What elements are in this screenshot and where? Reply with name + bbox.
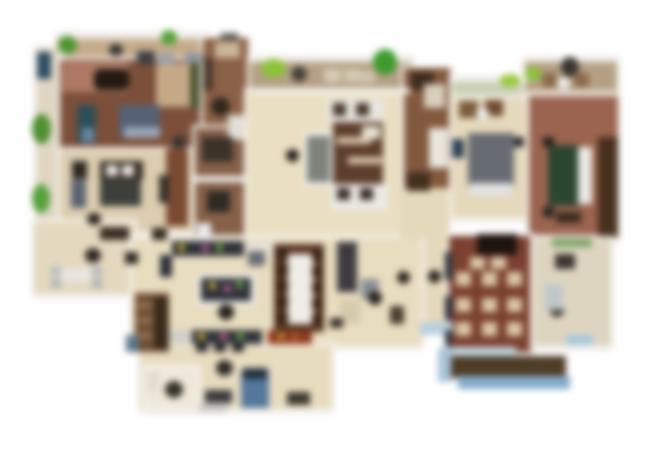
bl-chair-1 [51, 267, 61, 276]
sunroom-glass-table [545, 284, 563, 310]
terrace-plant-left [58, 36, 77, 54]
bedroom1-closet-dark [159, 175, 169, 203]
lounge-pit-white [362, 126, 380, 139]
lower-counter-dot-1 [198, 333, 205, 340]
bedroom1-stool [87, 213, 101, 225]
counter-gray-appliance [248, 251, 265, 266]
pantry-blue-item [126, 335, 138, 352]
bed1-pillow-2 [122, 165, 134, 176]
bed1-body [100, 179, 141, 206]
deck-planks [451, 356, 566, 378]
island-dot-pink [224, 285, 231, 292]
terrace-chair-1 [158, 54, 174, 64]
dr-head-chair-2 [491, 257, 506, 269]
left-bush-lower [32, 184, 50, 213]
balcony-tree-right [373, 49, 397, 75]
bc-desk-top [243, 368, 267, 379]
bl-chair-2 [51, 279, 61, 288]
corridor2-cabinet [390, 306, 404, 324]
bedroom3-bed-white-side [578, 147, 592, 204]
bedroom3-wardrobe [598, 137, 618, 236]
counter-dot-green [216, 244, 223, 251]
bedroom3-balcony-table [557, 77, 570, 89]
corridor-small-item [330, 318, 343, 328]
floor-plan-render [0, 0, 645, 450]
dining-room-cabinet [477, 234, 517, 255]
bl-chair-4 [92, 279, 102, 288]
dining-chair-right-2 [312, 266, 323, 277]
bedroom3-window-band [527, 91, 615, 96]
dr-window-3 [445, 330, 452, 346]
living-chair-teal-light [82, 128, 94, 142]
bath2-sink [147, 371, 159, 392]
bl-round-table [85, 248, 101, 263]
terrace-railing [57, 33, 207, 39]
sunroom-dark-item [555, 254, 575, 269]
dining-chair-left-2 [276, 264, 288, 276]
bedroom3-bed-green [548, 145, 579, 206]
bc-stool [216, 360, 233, 376]
bedroom3-bush [525, 67, 541, 81]
pantry-shelf-2 [138, 318, 152, 323]
pool-top-strip [452, 347, 516, 356]
sunroom-plant-band [552, 238, 592, 247]
dr-chair-6 [507, 298, 522, 312]
lounge-seat-top-1 [333, 103, 346, 116]
dining-chair-left-3 [276, 280, 288, 292]
dr-chair-5 [482, 298, 497, 312]
bath-fixture-lower [207, 191, 230, 212]
bar-stool-3 [232, 344, 244, 352]
room-a-sink [424, 84, 445, 108]
kitchen-tall-unit [160, 255, 172, 277]
room-a-dresser [407, 172, 430, 191]
bedroom1-chair [71, 180, 86, 208]
bedroom1-closet-strip [166, 148, 188, 226]
bc-bench-east [287, 392, 310, 405]
living-piano [94, 69, 129, 90]
lounge-pit-cushion-2 [348, 157, 382, 164]
pantry-shelf-3 [138, 333, 152, 338]
corridor-south-floor [400, 188, 450, 238]
dr-chair-8 [482, 322, 497, 336]
bedroom2-bed [468, 133, 514, 186]
balcony-pot [291, 66, 307, 82]
balcony-chair-c [360, 71, 375, 83]
pantry-dark-shelving [154, 297, 168, 349]
left-pot-blue [37, 52, 51, 79]
corridor-se-table [428, 270, 441, 283]
dr-head-chair-1 [470, 257, 485, 269]
entry-wardrobe [203, 58, 213, 91]
dr-window-2 [445, 296, 452, 320]
dr-chair-4 [456, 298, 471, 312]
bar-stool-2 [214, 344, 226, 352]
living-pot [172, 136, 186, 149]
bedroom2-bed-foot [470, 183, 512, 196]
dr-chair-9 [507, 322, 522, 336]
living-glass-dark [190, 60, 203, 108]
dining-table-white [287, 254, 314, 324]
bedroom2-bush [500, 74, 520, 87]
bath2-round-fixture [165, 381, 183, 398]
dr-chair-7 [456, 322, 471, 336]
lower-counter-white [170, 330, 192, 344]
bedroom2-dark-side [452, 139, 464, 158]
lounge-seat-bottom-2 [360, 188, 373, 200]
bedroom3-nightstand-1 [543, 137, 554, 147]
bedroom2-chair-1 [459, 101, 478, 118]
lower-counter-dot-3 [237, 333, 244, 340]
entry-console [215, 42, 240, 58]
red-buffet [268, 330, 312, 344]
bedroom1-wardrobe [72, 161, 87, 179]
bl-chair-3 [92, 267, 102, 276]
bedroom3-nightstand-2 [543, 207, 554, 217]
balcony-tree-left [261, 59, 286, 78]
bl-sideboard-2 [152, 228, 167, 240]
bedroom3-balcony-chair-2 [574, 73, 589, 87]
island-dot-green [236, 281, 243, 288]
bl-table-white [60, 268, 91, 282]
bedroom3-bench [556, 212, 581, 223]
room-a-bathtub [429, 128, 448, 168]
dr-chair-1 [456, 272, 471, 286]
terrace-chair-2 [185, 53, 202, 63]
dining-chair-left-1 [276, 248, 288, 260]
lower-counter-dot-2 [220, 333, 227, 340]
hall-window-band [252, 88, 410, 94]
balcony-chair-b [344, 69, 361, 82]
bar-stool-1 [196, 344, 208, 352]
hall-round-table [286, 149, 299, 162]
bed1-pillow-1 [106, 165, 118, 176]
bc-bench [205, 390, 232, 403]
dining-chair-right-4 [312, 298, 323, 309]
sunroom-blue-patch [566, 335, 593, 345]
corridor2-round-table [397, 271, 410, 284]
dining-chair-right-5 [312, 314, 323, 325]
bath-toilet [197, 223, 211, 241]
hall-island [307, 136, 330, 182]
living-window-strip [156, 63, 190, 107]
terrace-plant-right [161, 30, 177, 45]
bedroom3-balcony-chair-1 [542, 73, 557, 87]
terrace-grill [137, 51, 155, 64]
bath-cluster-divider [195, 176, 247, 182]
buffet-dot-1 [278, 333, 284, 339]
bc-doorstep [199, 404, 227, 412]
pool-bottom-water [458, 376, 570, 389]
corridor-side-table [340, 300, 360, 324]
bedroom2-nightstand [514, 137, 524, 147]
island-dot-yellow [209, 282, 216, 289]
counter-dot-pink [202, 245, 209, 252]
screenshot-canvas [0, 0, 645, 450]
bl-sideboard [100, 227, 129, 240]
lounge-seat-bottom-1 [337, 188, 350, 200]
dining-chair-right-3 [312, 282, 323, 293]
terrace-pot-dark [109, 44, 123, 56]
balcony-chair-a [324, 69, 341, 82]
entry-round-table [211, 97, 230, 116]
dr-chair-2 [482, 272, 497, 286]
lounge-seat-top-2 [356, 103, 369, 116]
counter-dot-yellow [178, 244, 185, 251]
corridor-round-table [368, 291, 382, 305]
dining-chair-right-1 [312, 250, 323, 261]
left-bush-upper [32, 114, 51, 144]
bath-fixture-upper [202, 137, 233, 162]
bl-dark-chair [125, 252, 138, 264]
dr-window-1 [445, 252, 452, 280]
buffet-dot-2 [292, 333, 298, 339]
dining-chair-left-5 [276, 312, 288, 324]
island-stool [218, 304, 234, 320]
dr-chair-3 [507, 272, 522, 286]
bedroom2-round-table [476, 108, 489, 119]
entry-door-dark [221, 33, 238, 40]
living-sofa-chaise [124, 127, 160, 138]
pantry-shelf-1 [138, 303, 152, 308]
dining-chair-left-4 [276, 296, 288, 308]
corridor-wardrobe [337, 242, 357, 292]
